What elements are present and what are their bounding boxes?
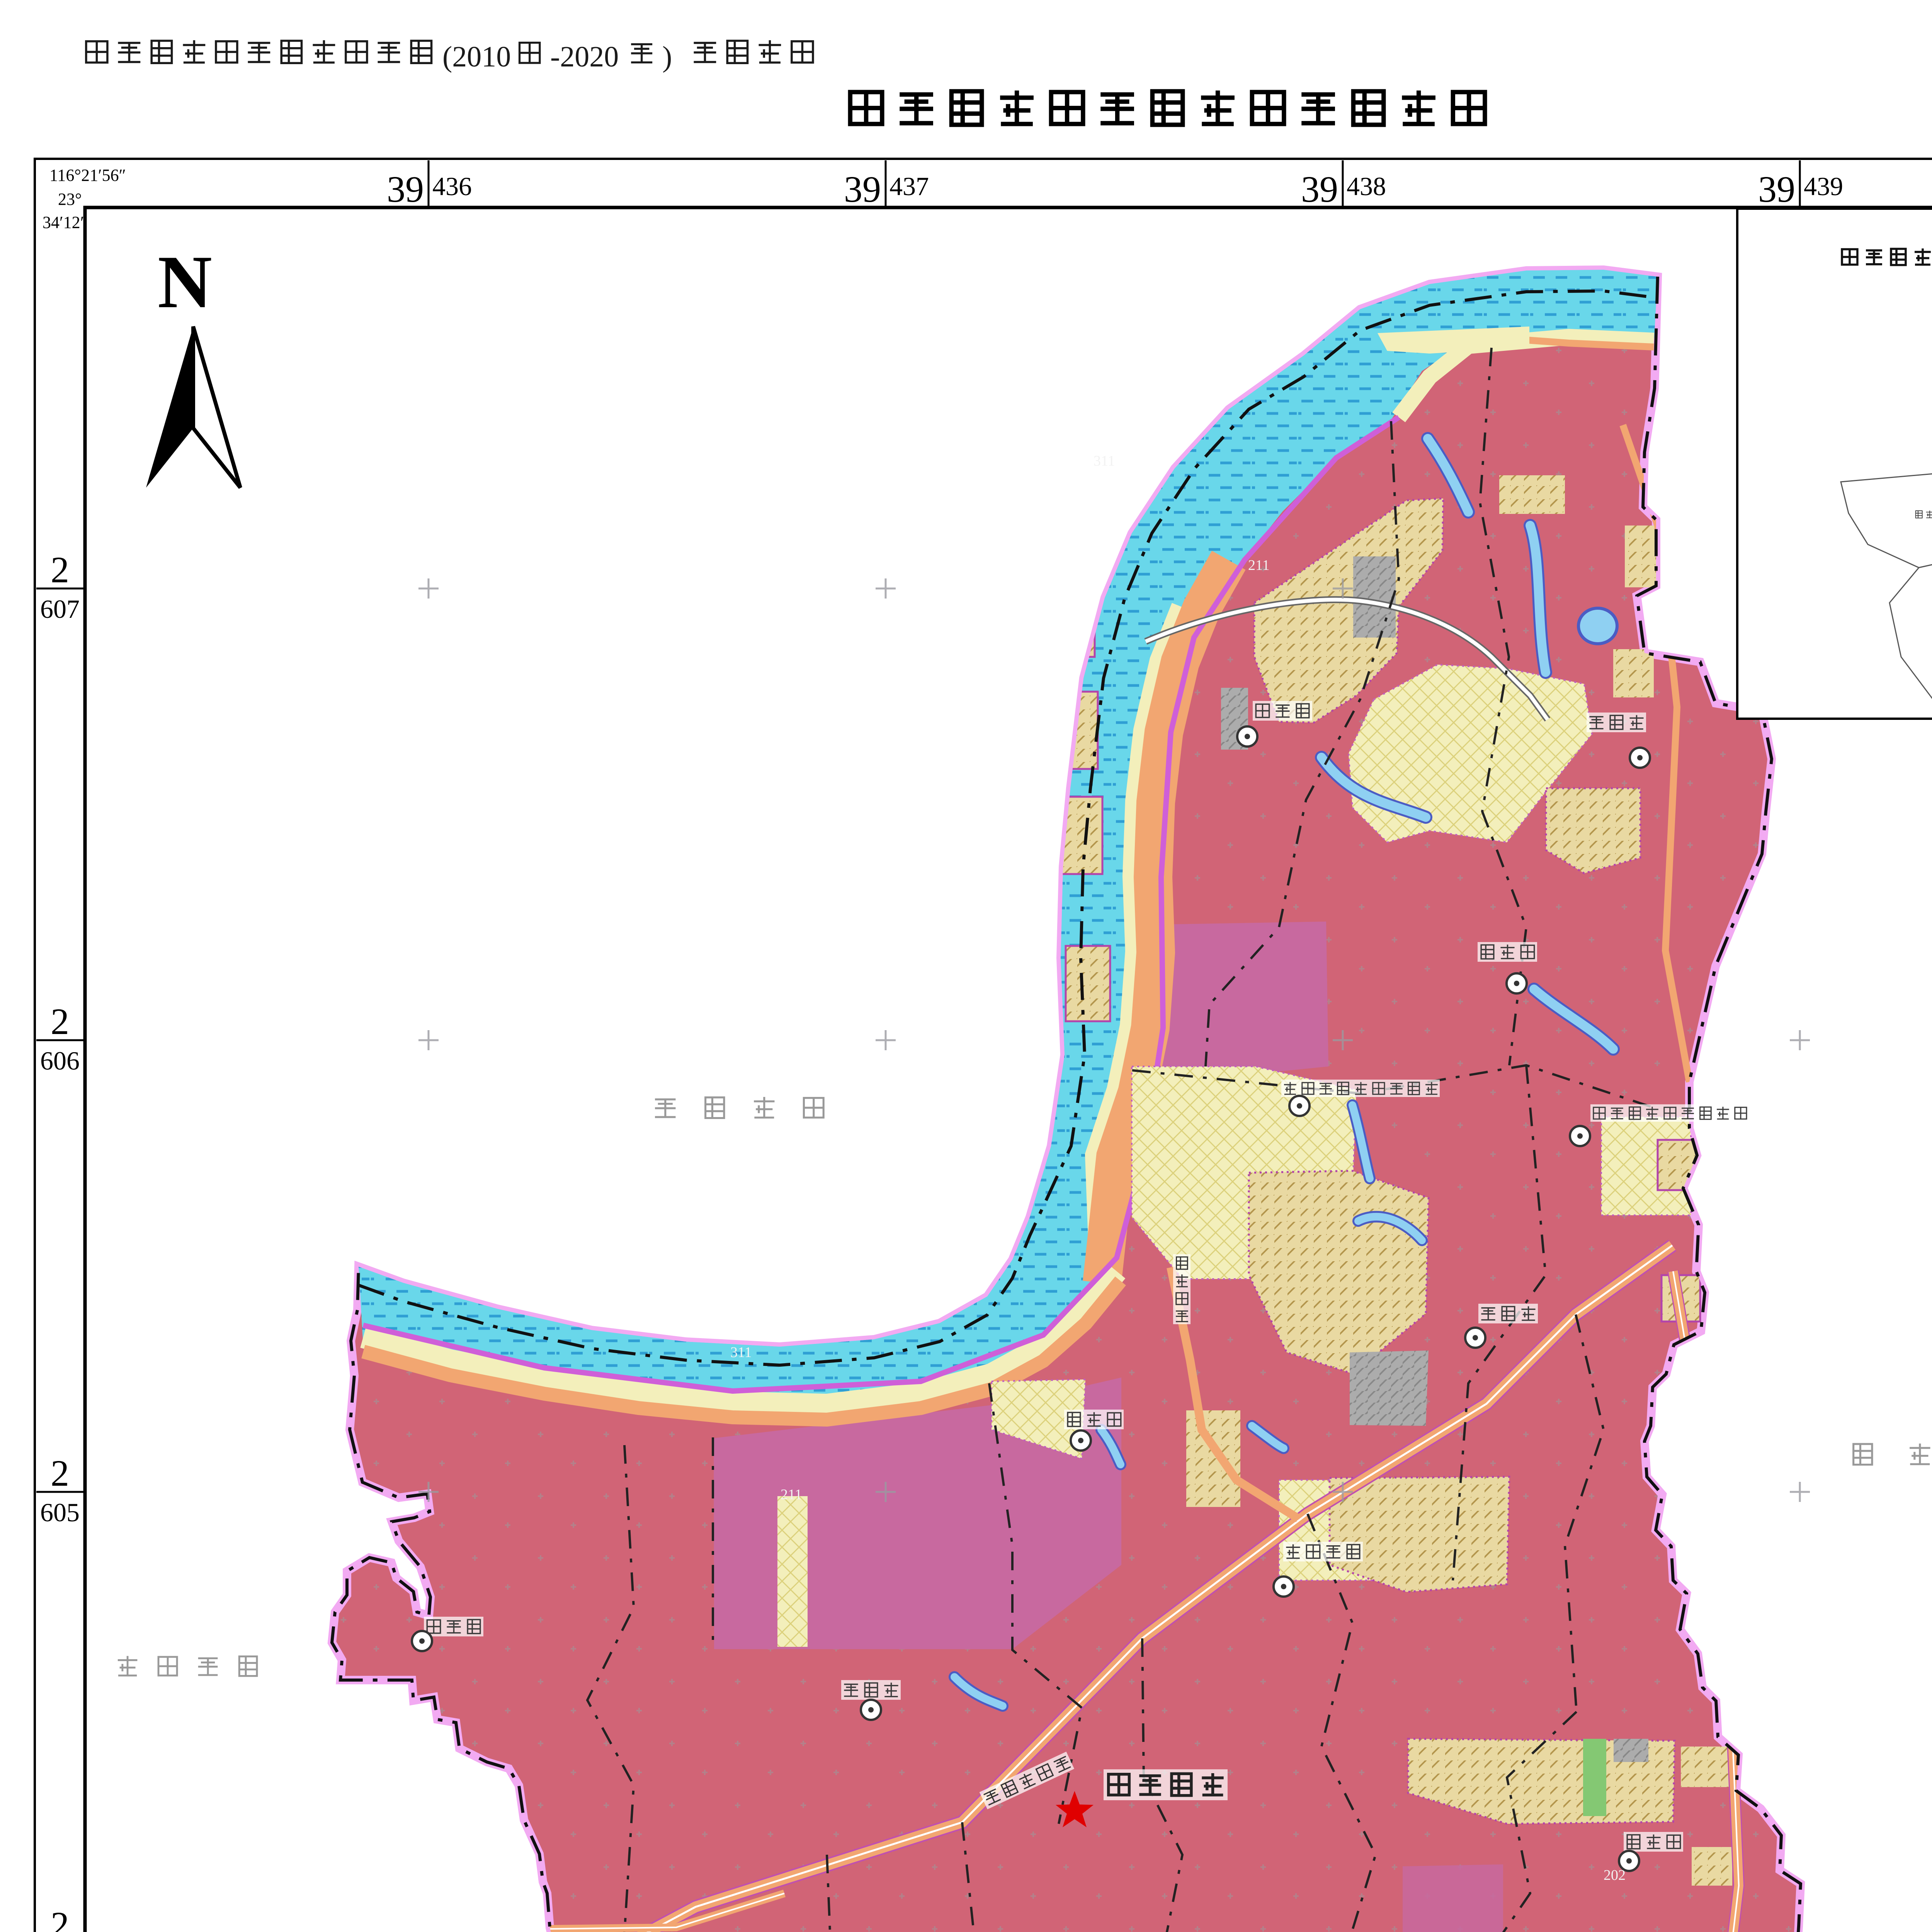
svg-text:211: 211 [1248, 557, 1270, 573]
svg-text:39: 39 [844, 168, 881, 210]
svg-text:39: 39 [387, 168, 424, 210]
svg-text:): ) [662, 41, 672, 73]
svg-text:34′12″: 34′12″ [43, 213, 87, 232]
svg-text:202: 202 [1604, 1867, 1626, 1883]
svg-text:2: 2 [51, 1001, 69, 1042]
svg-text:(2010: (2010 [442, 41, 511, 73]
svg-text:2: 2 [51, 1452, 69, 1494]
svg-text:23°: 23° [58, 190, 82, 209]
svg-text:39: 39 [1301, 168, 1338, 210]
svg-text:2: 2 [51, 549, 69, 590]
svg-text:606: 606 [40, 1046, 80, 1075]
svg-text:311: 311 [730, 1344, 752, 1361]
svg-text:607: 607 [40, 594, 80, 624]
svg-text:311: 311 [1094, 453, 1115, 469]
svg-text:605: 605 [40, 1498, 80, 1527]
svg-text:211: 211 [781, 1486, 802, 1503]
svg-text:439: 439 [1804, 172, 1843, 201]
svg-text:116°21′56″: 116°21′56″ [49, 166, 126, 185]
svg-text:437: 437 [889, 172, 929, 201]
svg-text:-2020: -2020 [550, 41, 619, 73]
svg-text:2: 2 [51, 1904, 69, 1932]
svg-text:39: 39 [1758, 168, 1795, 210]
svg-text:436: 436 [432, 172, 472, 201]
svg-text:438: 438 [1347, 172, 1386, 201]
svg-text:N: N [158, 240, 212, 324]
